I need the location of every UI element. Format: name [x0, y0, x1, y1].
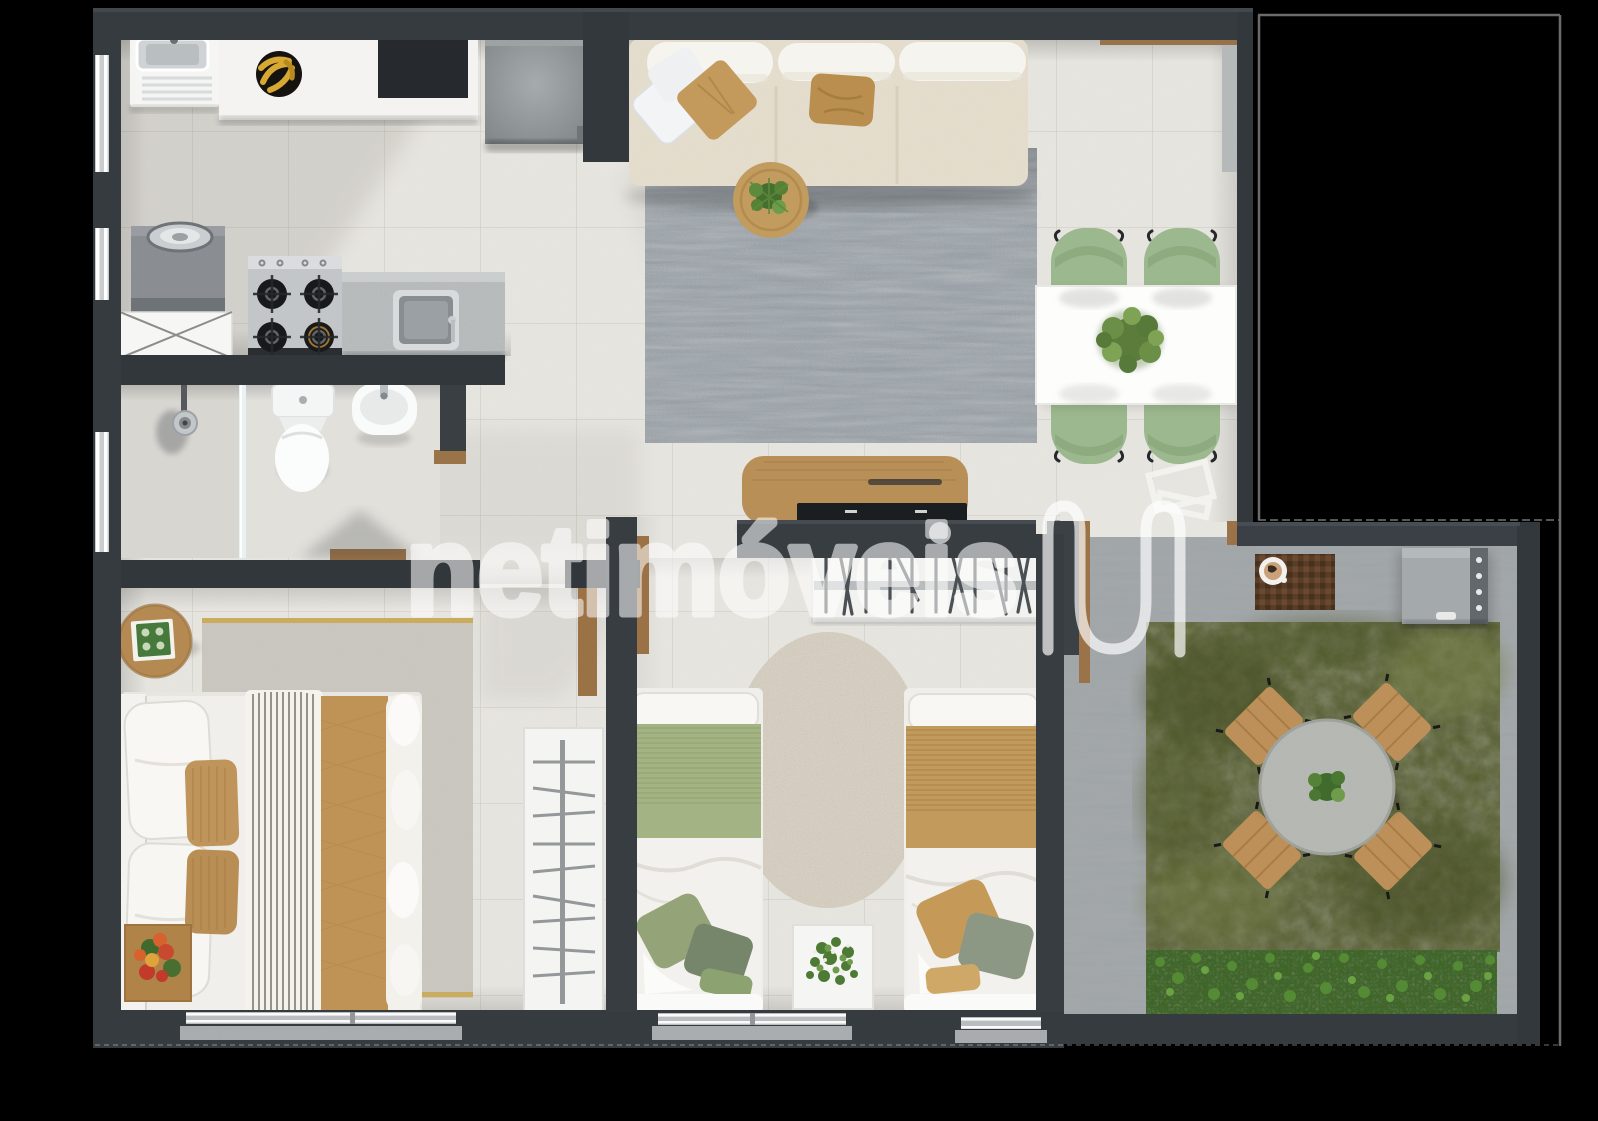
svg-text:netimóveis: netimóveis — [406, 500, 1018, 641]
